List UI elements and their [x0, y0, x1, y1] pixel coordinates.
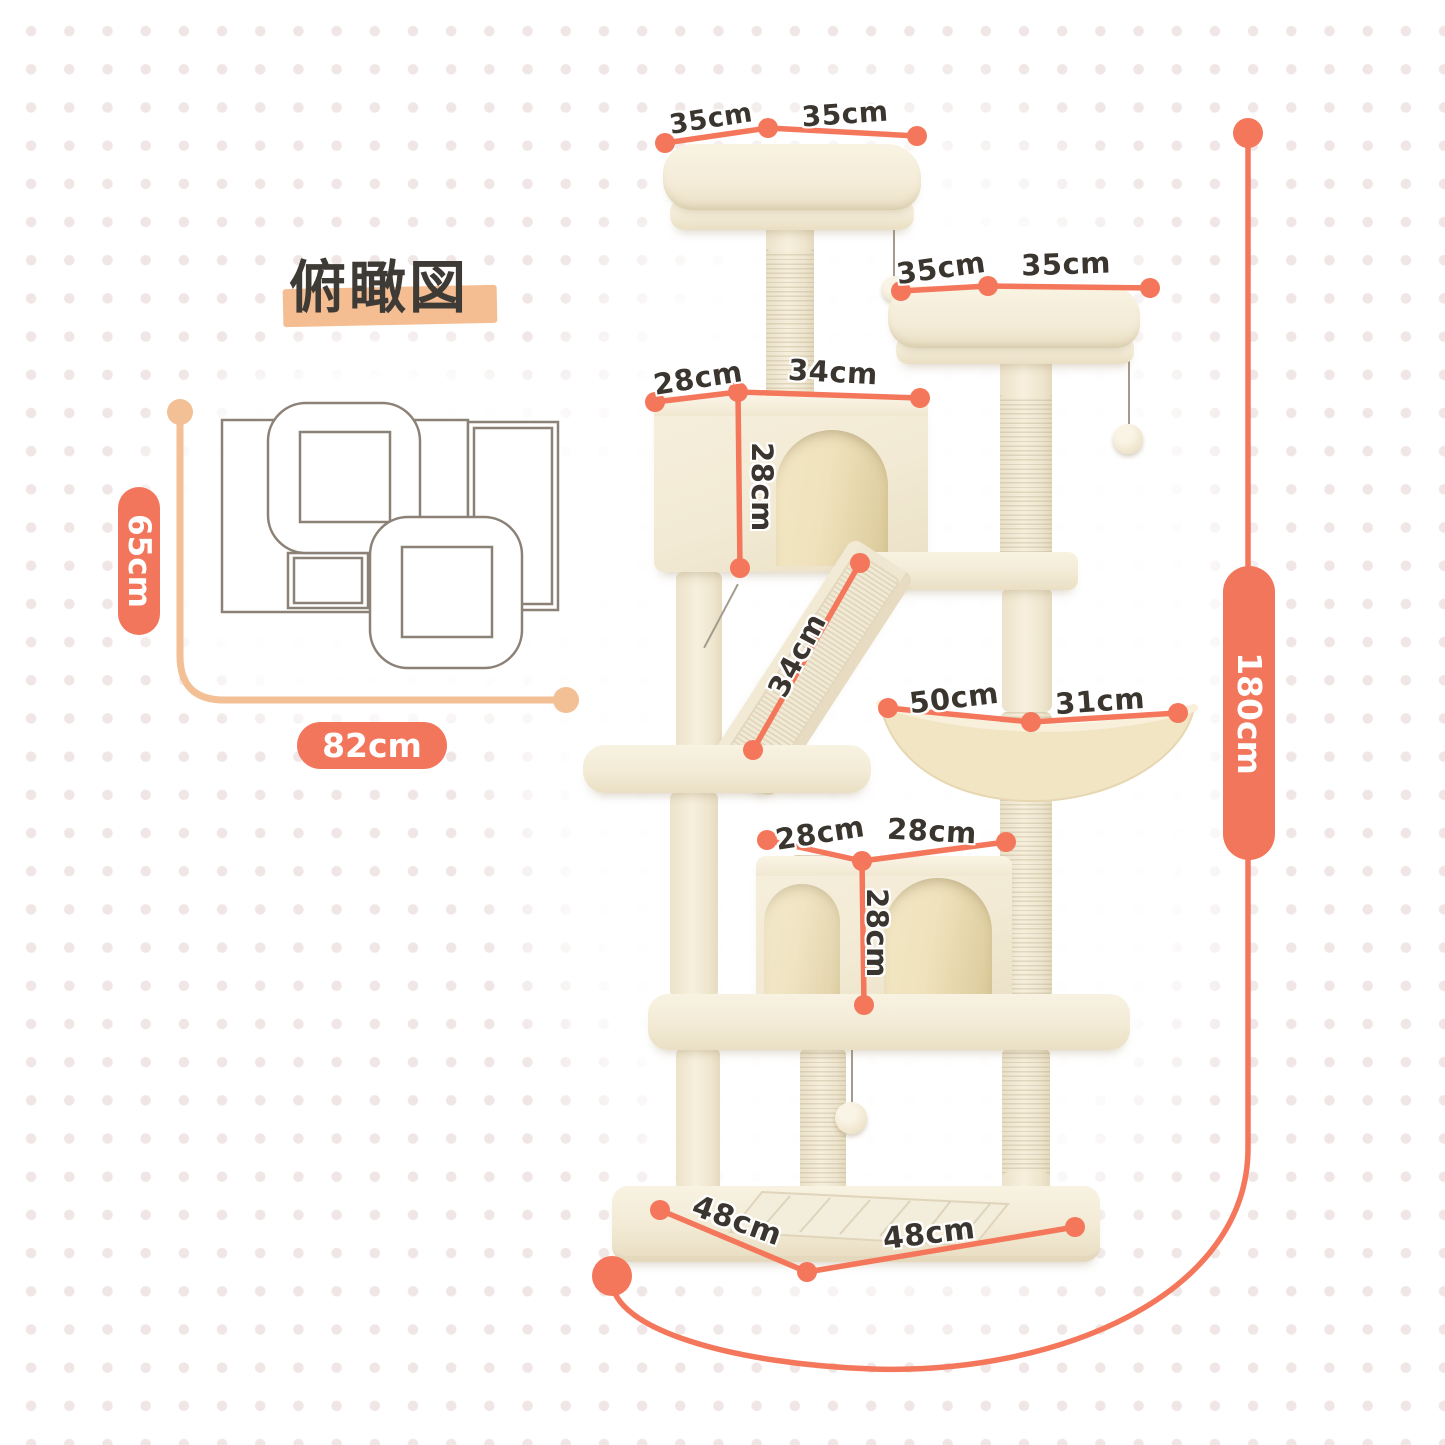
- dim-lower-condo-width: 28cm: [886, 812, 977, 851]
- title-block: 俯瞰図: [276, 240, 516, 340]
- footprint-depth-pill: 65cm: [118, 487, 160, 635]
- page-title: 俯瞰図: [289, 242, 469, 324]
- dim-hammock-depth: 31cm: [1054, 681, 1146, 721]
- product-dimension-infographic: { "title": { "text": "俯瞰図" }, "top_view"…: [0, 0, 1445, 1445]
- footprint-width-label: 82cm: [322, 726, 422, 765]
- total-height-pill: 180cm: [1223, 566, 1275, 860]
- dim-lower-condo-height: 28cm: [860, 888, 894, 978]
- dim-second-perch-width: 35cm: [1021, 245, 1112, 282]
- dim-upper-condo-width: 34cm: [787, 353, 878, 392]
- dim-upper-condo-height: 28cm: [745, 442, 779, 532]
- footprint-width-pill: 82cm: [297, 722, 447, 769]
- footprint-depth-label: 65cm: [121, 514, 157, 608]
- top-view-diagram: [222, 403, 558, 668]
- dim-top-perch-width: 35cm: [801, 95, 890, 134]
- total-height-label: 180cm: [1230, 652, 1269, 775]
